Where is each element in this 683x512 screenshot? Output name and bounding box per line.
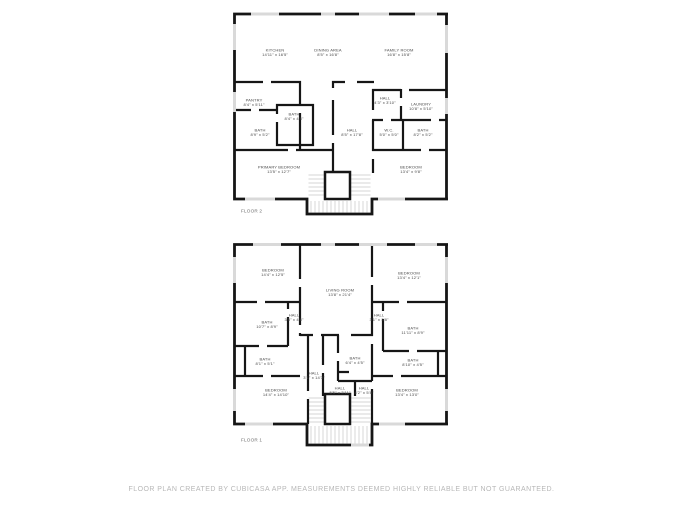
floor-1-room-labels: BEDROOM14'4" x 12'5"LIVING ROOM13'8" x 2…: [233, 241, 448, 448]
room-label-text: FAMILY ROOM16'8" x 15'8": [384, 48, 413, 57]
room-label-text: BATH8'9" x 5'2": [250, 128, 269, 137]
room-label-text: HALL5'5" x 3'11": [329, 386, 350, 395]
room-dimensions: 8'4" x 5'11": [243, 103, 264, 108]
room-dimensions: 11'11" x 8'9": [401, 331, 424, 336]
room-dimensions: 10'7" x 8'9": [256, 325, 277, 330]
floor-plan-page: KITCHEN14'11" x 16'5"DINING AREA8'5" x 1…: [0, 0, 683, 512]
room-dimensions: 8'10" x 4'5": [402, 363, 423, 368]
room-dimensions: 8'9" x 5'2": [250, 133, 269, 138]
room-dimensions: 13'4" x 13'0": [395, 393, 419, 398]
room-label-text: PRIMARY BEDROOM13'5" x 12'7": [258, 165, 300, 174]
room-label-text: HALL8'5" x 17'8": [341, 128, 362, 137]
room-label-text: BEDROOM13'4" x 9'8": [400, 165, 422, 174]
room-label-text: BATH6'4" x 4'5": [345, 356, 364, 365]
room-label-text: BEDROOM13'4" x 12'1": [397, 271, 421, 280]
floor-tag-text: FLOOR 1: [241, 438, 262, 443]
room-label-text: BEDROOM13'4" x 13'0": [395, 388, 419, 397]
floor-1-tag: FLOOR 1: [241, 438, 262, 443]
room-dimensions: 8'5" x 17'8": [341, 133, 362, 138]
room-label-text: HALL3'5" x 4'8": [284, 313, 303, 322]
floor-2-room-labels: KITCHEN14'11" x 16'5"DINING AREA8'5" x 1…: [233, 10, 448, 217]
room-label-text: BATH11'11" x 8'9": [401, 326, 424, 335]
room-dimensions: 8'4" x 4'8": [284, 117, 303, 122]
disclaimer-text: FLOOR PLAN CREATED BY CUBICASA APP. MEAS…: [0, 486, 683, 493]
room-label-text: BATH8'4" x 4'8": [284, 112, 303, 121]
room-dimensions: 5'0" x 5'0": [379, 133, 398, 138]
room-label-text: W.C.5'0" x 5'0": [379, 128, 398, 137]
room-dimensions: 13'5" x 12'7": [258, 170, 300, 175]
room-label-text: LAUNDRY10'8" x 5'10": [409, 102, 433, 111]
room-dimensions: 6'4" x 4'5": [345, 361, 364, 366]
room-label-text: HALL4'3" x 3'10": [374, 96, 395, 105]
room-label-text: HALL3'1" x 3'8": [369, 313, 388, 322]
room-dimensions: 4'2" x 5'8": [354, 391, 373, 396]
room-label-text: BATH10'7" x 8'9": [256, 320, 277, 329]
floor-2-tag: FLOOR 2: [241, 209, 262, 214]
room-dimensions: 14'4" x 14'10": [263, 393, 289, 398]
room-label-text: HALL4'2" x 5'8": [354, 386, 373, 395]
room-dimensions: 5'5" x 3'11": [329, 391, 350, 396]
room-dimensions: 4'3" x 3'10": [374, 101, 395, 106]
room-dimensions: 10'8" x 5'10": [409, 107, 433, 112]
room-dimensions: 3'5" x 4'8": [284, 318, 303, 323]
room-label-text: DINING AREA8'5" x 16'8": [314, 48, 341, 57]
room-label-text: BEDROOM14'4" x 12'5": [261, 268, 285, 277]
room-label-text: LIVING ROOM13'8" x 21'4": [326, 288, 354, 297]
room-dimensions: 14'4" x 12'5": [261, 273, 285, 278]
room-dimensions: 3'1" x 3'8": [369, 318, 388, 323]
room-dimensions: 3'1" x 14'3": [303, 376, 324, 381]
room-label-text: HALL3'1" x 14'3": [303, 371, 324, 380]
room-label-text: PANTRY8'4" x 5'11": [243, 98, 264, 107]
room-dimensions: 13'8" x 21'4": [326, 293, 354, 298]
room-label-text: BATH8'1" x 5'1": [255, 357, 274, 366]
room-dimensions: 8'1" x 5'1": [255, 362, 274, 367]
room-dimensions: 13'4" x 9'8": [400, 170, 422, 175]
room-label-text: KITCHEN14'11" x 16'5": [262, 48, 288, 57]
room-dimensions: 13'4" x 12'1": [397, 276, 421, 281]
room-dimensions: 8'5" x 16'8": [314, 53, 341, 58]
room-label-text: BATH8'10" x 4'5": [402, 358, 423, 367]
room-dimensions: 16'8" x 15'8": [384, 53, 413, 58]
room-label-text: BEDROOM14'4" x 14'10": [263, 388, 289, 397]
room-label-text: BATH8'2" x 5'2": [413, 128, 432, 137]
floor-2-plan: KITCHEN14'11" x 16'5"DINING AREA8'5" x 1…: [233, 10, 448, 217]
floor-tag-text: FLOOR 2: [241, 209, 262, 214]
room-dimensions: 14'11" x 16'5": [262, 53, 288, 58]
floor-1-plan: BEDROOM14'4" x 12'5"LIVING ROOM13'8" x 2…: [233, 241, 448, 448]
room-dimensions: 8'2" x 5'2": [413, 133, 432, 138]
